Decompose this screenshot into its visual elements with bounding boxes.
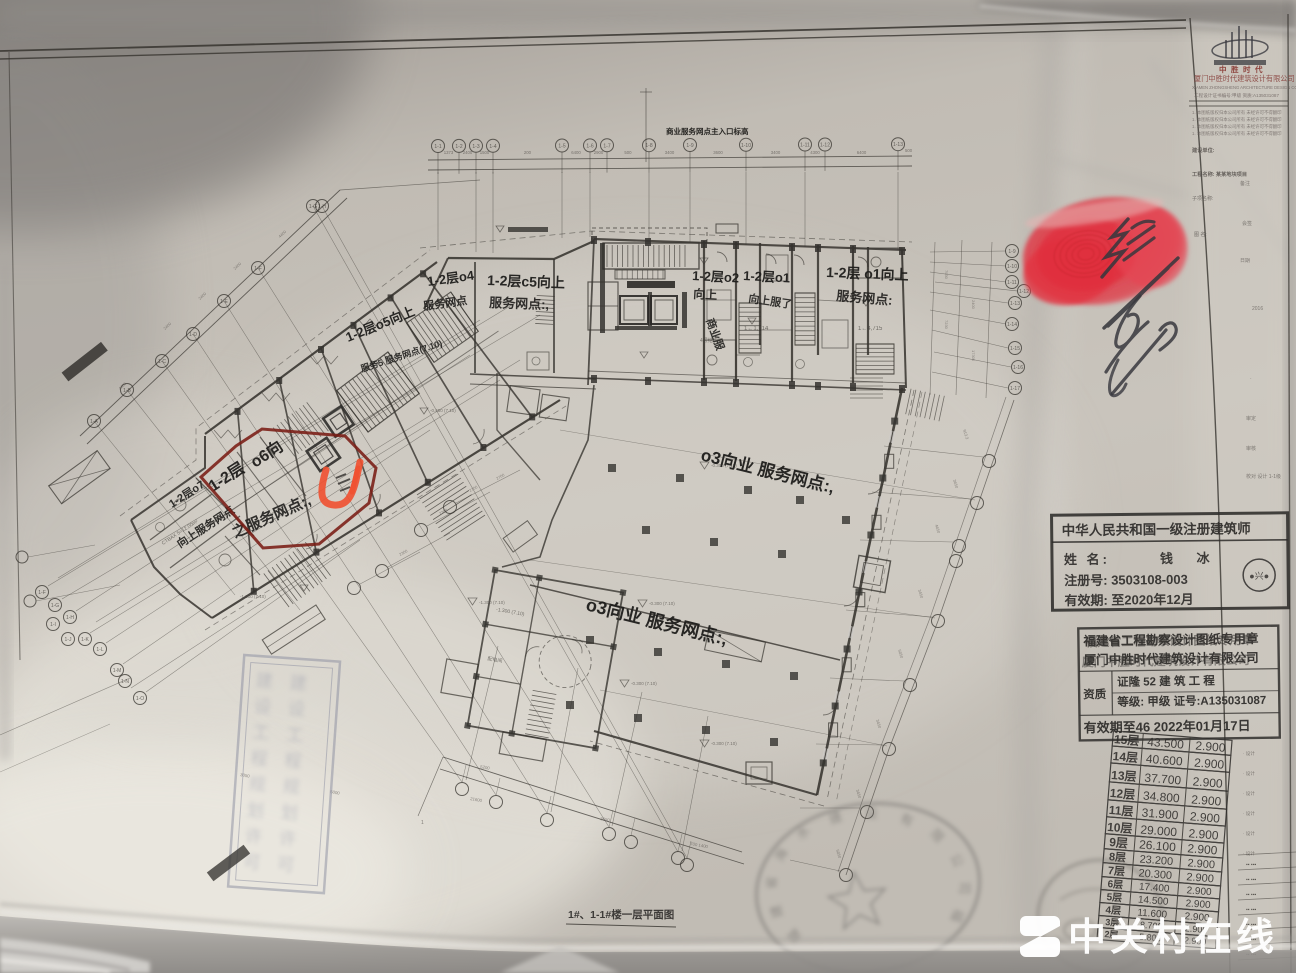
svg-text:省: 省: [764, 876, 780, 890]
svg-text:建: 建: [289, 673, 307, 693]
svg-text:2016: 2016: [1252, 306, 1263, 312]
svg-text:建: 建: [255, 671, 273, 691]
svg-text:6400: 6400: [857, 150, 867, 155]
svg-text:13层: 13层: [1111, 768, 1137, 784]
svg-text:钱 冰: 钱 冰: [1160, 550, 1220, 566]
svg-text:划: 划: [246, 801, 264, 821]
svg-text:-1.300 (7.10): -1.300 (7.10): [479, 600, 505, 605]
svg-text:2400: 2400: [463, 150, 473, 155]
svg-text:1-3: 1-3: [472, 144, 479, 150]
svg-text:1-16: 1-16: [1013, 365, 1023, 371]
svg-text:备注: 备注: [1240, 180, 1250, 187]
svg-text:图 名:: 图 名:: [1194, 231, 1207, 238]
svg-text:3400: 3400: [665, 150, 675, 155]
svg-text:中关村在线: 中关村在线: [1068, 917, 1278, 959]
svg-text:17300: 17300: [971, 350, 976, 362]
svg-text:厦门中胜时代建筑设计有限公司: 厦门中胜时代建筑设计有限公司: [1082, 652, 1250, 669]
svg-text:1-F: 1-F: [38, 590, 46, 596]
svg-text:1-2层o2: 1-2层o2: [692, 268, 740, 285]
svg-text:1-9: 1-9: [1008, 249, 1015, 255]
svg-text:程: 程: [250, 749, 268, 769]
svg-text:许: 许: [278, 829, 296, 849]
svg-text:6层: 6层: [1107, 878, 1123, 891]
svg-text:1#、1-1#楼一层平面图: 1#、1-1#楼一层平面图: [568, 908, 674, 921]
svg-text:-0.300 (7.10): -0.300 (7.10): [631, 681, 657, 686]
svg-text:15层: 15层: [1114, 732, 1140, 748]
svg-text:2400: 2400: [971, 300, 976, 310]
svg-text:1-15: 1-15: [1010, 346, 1020, 352]
svg-text:1-14: 1-14: [1007, 322, 1017, 328]
svg-text:· 设计: · 设计: [1243, 770, 1255, 777]
svg-text:1-17: 1-17: [1010, 386, 1020, 392]
svg-text:1-9: 1-9: [686, 143, 693, 149]
svg-text:1-K: 1-K: [81, 637, 89, 643]
svg-text:200: 200: [524, 150, 532, 155]
svg-text:1-11: 1-11: [1007, 280, 1017, 286]
svg-text:●兴●: ●兴●: [1249, 571, 1269, 581]
svg-text:1-13: 1-13: [893, 142, 903, 148]
svg-text:4层: 4层: [1105, 904, 1121, 917]
svg-text:1-H: 1-H: [66, 615, 74, 621]
svg-text:1←1,714: 1←1,714: [744, 326, 769, 332]
svg-text:1. 本图纸版权归本公司所有 未经许可不得翻印: 1. 本图纸版权归本公司所有 未经许可不得翻印: [1192, 130, 1282, 137]
svg-text:中胜时代: 中胜时代: [1219, 64, 1267, 74]
svg-text:4层结构面: 4层结构面: [700, 337, 723, 344]
svg-text:1-12: 1-12: [1019, 289, 1029, 295]
svg-text:▪▪ ▪▪▪: ▪▪ ▪▪▪: [1246, 877, 1256, 883]
svg-text:· 设计: · 设计: [1243, 850, 1255, 857]
svg-text:· 设计: · 设计: [1243, 750, 1255, 757]
svg-text:7层: 7层: [1107, 864, 1125, 878]
svg-text:12层: 12层: [1109, 786, 1135, 802]
svg-text:注册号: 3503108-003: 注册号: 3503108-003: [1064, 572, 1188, 588]
svg-text:2900: 2900: [594, 150, 604, 155]
svg-text:1-H: 1-H: [318, 204, 326, 210]
svg-text:· 设计: · 设计: [1243, 790, 1255, 797]
svg-text:规: 规: [248, 775, 266, 795]
svg-text:1-8: 1-8: [645, 143, 652, 149]
svg-text:-1.300 (7.10): -1.300 (7.10): [240, 594, 266, 599]
svg-text:1-B: 1-B: [123, 388, 131, 394]
svg-text:工程名称: 某某地块项目: 工程名称: 某某地块项目: [1192, 170, 1247, 178]
svg-text:1-G: 1-G: [51, 603, 59, 609]
svg-text:1-I: 1-I: [50, 622, 56, 628]
svg-text:1-C: 1-C: [158, 359, 166, 365]
svg-text:10层: 10层: [1107, 820, 1133, 836]
svg-text:会签: 会签: [1242, 220, 1252, 227]
svg-text:1-2: 1-2: [455, 144, 462, 150]
svg-text:7230: 7230: [944, 320, 949, 330]
svg-text:1-M: 1-M: [113, 668, 122, 674]
svg-text:向上: 向上: [693, 286, 718, 302]
svg-text:1-J: 1-J: [65, 637, 72, 643]
svg-text:程: 程: [284, 751, 302, 771]
svg-text:1-2层 o1向上: 1-2层 o1向上: [826, 264, 909, 283]
svg-text:500: 500: [624, 150, 632, 155]
svg-text:福建省工程勘察设计图纸专用章: 福建省工程勘察设计图纸专用章: [1084, 632, 1253, 649]
svg-text:3400: 3400: [771, 150, 781, 155]
svg-text:1-4: 1-4: [489, 144, 496, 150]
svg-text:1. 本图纸版权归本公司所有 未经许可不得翻印: 1. 本图纸版权归本公司所有 未经许可不得翻印: [1192, 116, 1282, 123]
svg-text:1500: 1500: [480, 150, 490, 155]
svg-text:中华人民共和国一级注册建筑师: 中华人民共和国一级注册建筑师: [1062, 520, 1252, 538]
svg-text:商业服务网点主入口标高: 商业服务网点主入口标高: [666, 126, 749, 136]
svg-text:工: 工: [252, 723, 270, 743]
svg-text:子项名称:: 子项名称:: [1192, 195, 1213, 202]
svg-text:1-10: 1-10: [741, 143, 751, 149]
svg-text:▪▪ ▪▪▪: ▪▪ ▪▪▪: [1246, 892, 1256, 898]
svg-text:3600: 3600: [713, 150, 723, 155]
svg-text:审核: 审核: [1246, 445, 1256, 452]
svg-text:1-1: 1-1: [434, 144, 441, 150]
svg-text:· 设计: · 设计: [1243, 830, 1255, 837]
svg-text:1. 本图纸版权归本公司所有 未经许可不得翻印: 1. 本图纸版权归本公司所有 未经许可不得翻印: [1192, 109, 1282, 116]
svg-text:工: 工: [286, 725, 304, 745]
svg-text:设: 设: [254, 697, 272, 717]
svg-text:工程设计证书编号:甲级 资质:A135031087: 工程设计证书编号:甲级 资质:A135031087: [1194, 92, 1279, 99]
svg-text:1-7: 1-7: [603, 143, 610, 149]
svg-text:许: 许: [244, 827, 262, 847]
svg-text:14层: 14层: [1112, 749, 1138, 765]
svg-text:7930: 7930: [944, 270, 949, 280]
svg-text:-0.450 (7.10): -0.450 (7.10): [430, 408, 456, 413]
svg-text:可: 可: [277, 855, 295, 875]
svg-text:日期: 日期: [1240, 258, 1250, 264]
svg-text:-0.300 (7.10): -0.300 (7.10): [649, 601, 675, 606]
svg-text:4300: 4300: [810, 150, 820, 155]
svg-text:-0.300 (7.10): -0.300 (7.10): [711, 741, 737, 746]
svg-text:设: 设: [287, 699, 305, 719]
svg-text:· 设计: · 设计: [1243, 810, 1255, 817]
svg-text:1-F: 1-F: [254, 266, 262, 272]
svg-text:500: 500: [905, 148, 913, 153]
svg-text:1←4,715: 1←4,715: [858, 326, 883, 332]
svg-text:1-2层o1: 1-2层o1: [743, 268, 791, 285]
svg-text:姓 名:: 姓 名:: [1063, 552, 1110, 567]
svg-text:XIAMEN ZHONGSHENG ARCHITECTURE: XIAMEN ZHONGSHENG ARCHITECTURE DESIGN CO…: [1192, 85, 1296, 90]
svg-text:1373: 1373: [444, 150, 454, 155]
svg-text:证隆 52 建 筑 工 程: 证隆 52 建 筑 工 程: [1117, 674, 1215, 689]
svg-text:校对 设计 1-1级: 校对 设计 1-1级: [1246, 473, 1281, 480]
svg-text:1-13: 1-13: [1010, 301, 1020, 307]
svg-text:11层: 11层: [1108, 803, 1134, 819]
svg-text:▪▪ ▪▪▪: ▪▪ ▪▪▪: [1246, 862, 1256, 868]
svg-text:1. 本图纸版权归本公司所有 未经许可不得翻印: 1. 本图纸版权归本公司所有 未经许可不得翻印: [1192, 123, 1282, 130]
svg-text:建设单位:: 建设单位:: [1192, 146, 1215, 154]
svg-text:1-11: 1-11: [800, 143, 810, 149]
svg-text:有效期: 至2020年12月: 有效期: 至2020年12月: [1064, 592, 1193, 608]
svg-text:5层: 5层: [1106, 891, 1122, 904]
svg-text:服务网点:,: 服务网点:,: [489, 295, 549, 312]
svg-text:1-O: 1-O: [136, 696, 144, 702]
svg-text:1-10: 1-10: [1007, 264, 1017, 270]
svg-text:设: 设: [864, 806, 878, 821]
svg-text:1-5: 1-5: [558, 144, 565, 150]
svg-text:1-A: 1-A: [90, 419, 98, 425]
svg-text:审定: 审定: [1246, 415, 1256, 422]
svg-text:厦门中胜时代建筑设计有限公司: 厦门中胜时代建筑设计有限公司: [1194, 74, 1295, 83]
svg-text:1-2层c5向上: 1-2层c5向上: [487, 272, 565, 291]
svg-text:司: 司: [957, 881, 972, 894]
svg-text:有效期至46 2022年01月17日: 有效期至46 2022年01月17日: [1084, 718, 1251, 735]
svg-text:划: 划: [280, 803, 298, 823]
svg-text:1-L: 1-L: [96, 647, 103, 653]
svg-text:资质: 资质: [1083, 687, 1107, 701]
svg-text:▪▪ ▪▪▪: ▪▪ ▪▪▪: [1246, 907, 1256, 913]
svg-text:1-D: 1-D: [189, 332, 197, 338]
svg-text:6400: 6400: [571, 150, 581, 155]
svg-text:规: 规: [282, 777, 300, 797]
svg-text:1-6: 1-6: [586, 143, 593, 149]
svg-text:1-12: 1-12: [820, 143, 830, 149]
svg-text:9层: 9层: [1109, 835, 1129, 850]
svg-text:1: 1: [421, 820, 424, 826]
